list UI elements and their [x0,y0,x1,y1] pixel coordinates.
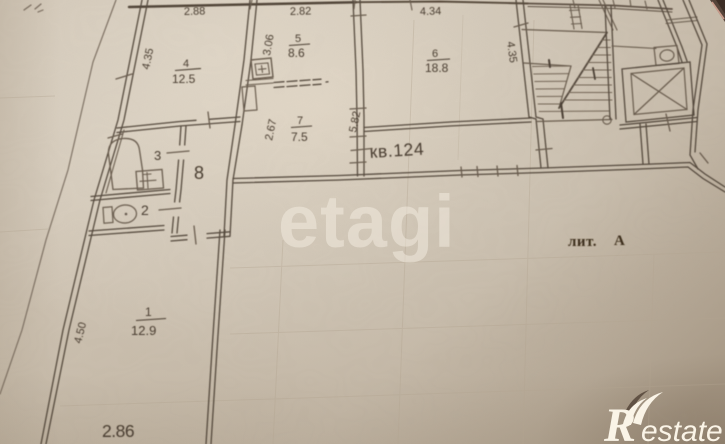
svg-text:7: 7 [297,115,303,127]
svg-text:лит.: лит. [568,234,597,250]
svg-text:А: А [614,233,625,249]
svg-text:8: 8 [194,163,204,183]
svg-text:1: 1 [145,305,152,319]
svg-text:8.6: 8.6 [288,46,305,60]
svg-text:estate: estate [641,415,723,444]
svg-text:12.9: 12.9 [131,323,156,338]
svg-text:2: 2 [141,202,149,218]
svg-text:2.86: 2.86 [102,421,134,441]
svg-text:12.5: 12.5 [172,72,196,86]
svg-text:7.5: 7.5 [291,130,308,144]
svg-text:кв.124: кв.124 [369,139,425,162]
svg-text:6: 6 [432,48,438,60]
svg-text:4.34: 4.34 [420,5,442,18]
svg-text:5: 5 [295,33,301,45]
svg-text:3: 3 [154,148,161,163]
svg-text:2.82: 2.82 [290,5,312,18]
svg-text:2.88: 2.88 [184,5,206,18]
svg-text:18.8: 18.8 [425,61,449,75]
svg-text:etagi: etagi [278,180,456,263]
svg-text:4: 4 [183,58,189,70]
